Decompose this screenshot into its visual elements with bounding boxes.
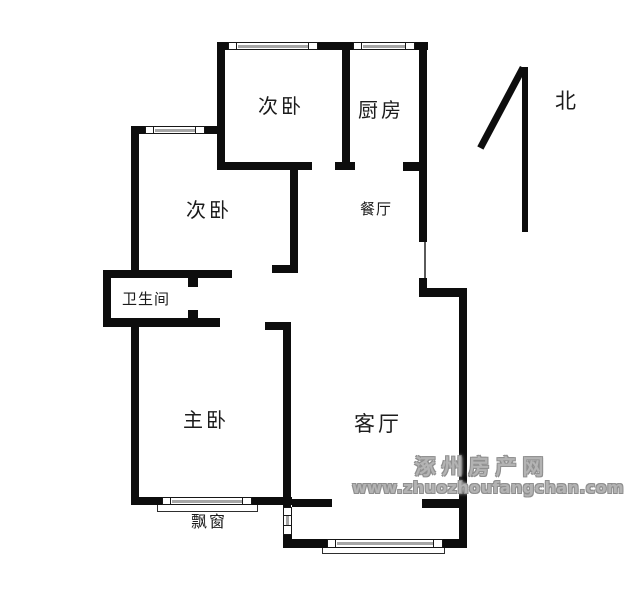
room-label-bay-window: 飘窗 [191, 514, 227, 530]
window-master-bay [162, 497, 252, 505]
wall-bedroom-left-east [290, 168, 298, 273]
wall-bedroom-top-left [217, 42, 225, 170]
wall-kitchen-left [342, 50, 350, 162]
window-living-bottom [327, 539, 443, 548]
wall-bedroom-top-door-bar [335, 162, 355, 170]
watermark: 涿州房产网 www.zhuozhoufangchan.com [352, 456, 612, 497]
north-arrow-shaft [522, 67, 528, 232]
wall-kitchen-bottom-piece [403, 162, 422, 171]
wall-living-jog-south [292, 499, 332, 507]
room-label-master-bedroom: 主卧 [183, 410, 229, 430]
floor-plan: 北 次卧 厨房 次卧 餐厅 卫生间 主卧 客厅 飘窗 涿州房产网 www.zhu… [0, 0, 637, 600]
watermark-site-url: www.zhuozhoufangchan.com [352, 479, 612, 497]
window-bedroom-left-top [145, 126, 205, 134]
wall-master-door-stub [265, 322, 291, 330]
wall-bedroom-left-top-a [131, 126, 145, 134]
dining-opening-line [424, 242, 426, 278]
wall-bedroom-left-west [131, 134, 139, 270]
room-label-bathroom: 卫生间 [122, 292, 170, 307]
wall-bathroom-door-stub-bottom [188, 310, 198, 318]
north-arrow-diagonal [477, 66, 526, 150]
wall-master-bottom-left [131, 497, 162, 505]
wall-living-bottom-left [287, 539, 327, 548]
room-label-bedroom-top: 次卧 [258, 96, 304, 116]
wall-kitchen-right [419, 42, 427, 242]
watermark-site-name: 涿州房产网 [352, 456, 612, 479]
window-kitchen-top [353, 42, 415, 50]
wall-top-middle [318, 42, 353, 50]
room-label-living-room: 客厅 [354, 414, 402, 435]
window-bedroom-top [228, 42, 318, 50]
room-label-bedroom-left: 次卧 [186, 200, 232, 220]
window-sill-master [157, 504, 258, 512]
wall-living-bottom-stub [422, 499, 459, 508]
room-label-kitchen: 厨房 [358, 100, 404, 120]
room-label-dining: 餐厅 [360, 202, 392, 217]
wall-living-bottom-right [443, 539, 467, 548]
wall-bedroom-left-top-b [205, 126, 217, 134]
wall-bathroom-bottom [103, 318, 220, 327]
wall-bathroom-door-stub-top [188, 278, 198, 287]
window-living-west [283, 507, 292, 535]
wall-bedroom-left-door-stub [272, 265, 290, 273]
wall-bathroom-top [103, 270, 232, 278]
north-label: 北 [555, 91, 576, 112]
wall-master-living-separator [283, 322, 291, 508]
wall-living-right [459, 288, 467, 548]
wall-master-left [131, 327, 139, 505]
